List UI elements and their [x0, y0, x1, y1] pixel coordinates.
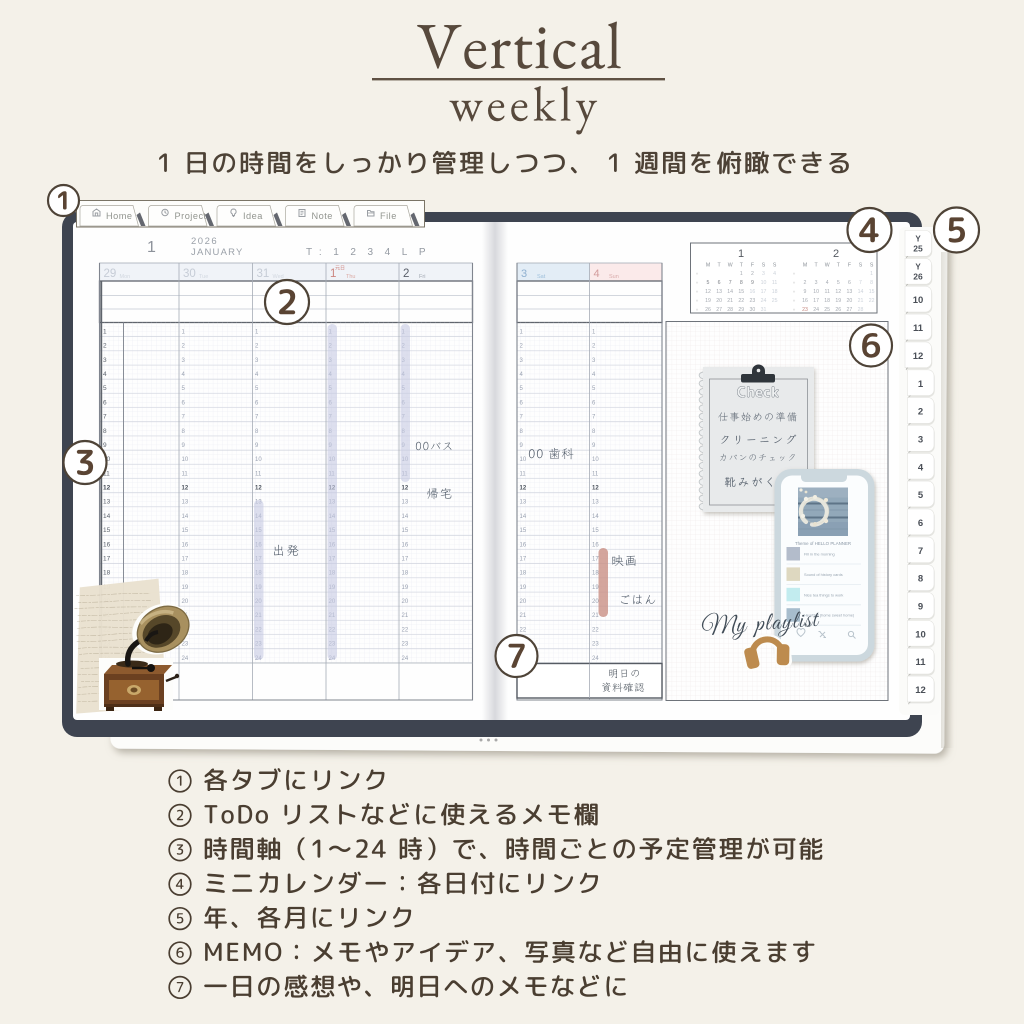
svg-text:11: 11 — [182, 471, 189, 477]
svg-text:S: S — [773, 263, 777, 269]
svg-text:9: 9 — [751, 280, 754, 286]
svg-text:Y: Y — [915, 235, 921, 244]
svg-text:13: 13 — [103, 499, 111, 506]
svg-text:7: 7 — [103, 414, 107, 421]
svg-text:4: 4 — [826, 280, 829, 286]
svg-text:Nice tea things to work: Nice tea things to work — [804, 592, 843, 597]
svg-text:31: 31 — [761, 307, 767, 313]
svg-text:5: 5 — [918, 490, 924, 501]
svg-text:15: 15 — [520, 528, 527, 534]
svg-text:12: 12 — [913, 351, 924, 362]
svg-text:18: 18 — [182, 571, 189, 577]
svg-text:23: 23 — [592, 642, 599, 648]
svg-text:14: 14 — [858, 289, 864, 295]
svg-text:17: 17 — [520, 557, 527, 563]
svg-text:12: 12 — [520, 486, 527, 492]
svg-text:S: S — [762, 263, 766, 269]
svg-text:F: F — [751, 263, 754, 269]
svg-text:15: 15 — [869, 289, 875, 295]
svg-text:16: 16 — [592, 542, 599, 548]
svg-text:M: M — [706, 263, 710, 269]
svg-text:11: 11 — [913, 323, 924, 334]
svg-text:4: 4 — [594, 268, 600, 280]
svg-text:Thu: Thu — [346, 274, 355, 280]
svg-text:21: 21 — [402, 613, 409, 619]
svg-text:4: 4 — [103, 371, 107, 378]
svg-text:1: 1 — [870, 271, 873, 277]
svg-text:10: 10 — [813, 289, 819, 295]
svg-text:27: 27 — [716, 307, 722, 313]
svg-text:10: 10 — [915, 629, 926, 640]
svg-text:12: 12 — [592, 486, 599, 492]
svg-text:17: 17 — [761, 289, 767, 295]
svg-text:6: 6 — [918, 518, 923, 529]
svg-text:JANUARY: JANUARY — [191, 247, 244, 258]
svg-text:6: 6 — [848, 280, 851, 286]
svg-text:22: 22 — [738, 298, 744, 304]
svg-text:17: 17 — [592, 557, 599, 563]
svg-text:20: 20 — [182, 599, 189, 605]
svg-text:11: 11 — [592, 471, 599, 477]
svg-text:11: 11 — [255, 471, 262, 477]
svg-text:15: 15 — [182, 528, 189, 534]
svg-text:10: 10 — [761, 280, 767, 286]
svg-text:S: S — [859, 263, 863, 269]
svg-text:3: 3 — [815, 280, 818, 286]
svg-text:File: File — [380, 211, 397, 221]
svg-text:20: 20 — [592, 599, 599, 605]
svg-text:6: 6 — [103, 399, 107, 406]
svg-text:28: 28 — [858, 307, 864, 313]
svg-text:10: 10 — [255, 457, 262, 463]
svg-text:22: 22 — [520, 627, 527, 633]
svg-text:14: 14 — [727, 289, 733, 295]
svg-text:20: 20 — [847, 298, 853, 304]
svg-text:12: 12 — [915, 685, 926, 696]
svg-text:3: 3 — [762, 271, 765, 277]
svg-text:1: 1 — [738, 248, 744, 260]
svg-text:15: 15 — [738, 289, 744, 295]
svg-text:W: W — [825, 263, 830, 269]
svg-text:Wed: Wed — [273, 274, 284, 280]
svg-text:11: 11 — [825, 289, 830, 295]
svg-text:1: 1 — [147, 239, 156, 256]
svg-text:8: 8 — [870, 280, 873, 286]
svg-text:28: 28 — [727, 307, 733, 313]
svg-text:Sound of history cards: Sound of history cards — [804, 572, 843, 577]
svg-text:19: 19 — [182, 585, 189, 591]
svg-text:13: 13 — [520, 500, 527, 506]
svg-text:2: 2 — [403, 268, 409, 280]
svg-text:1: 1 — [918, 379, 924, 390]
svg-text:24: 24 — [402, 656, 409, 662]
svg-text:13: 13 — [402, 500, 409, 506]
svg-text:1: 1 — [103, 329, 107, 336]
svg-text:20: 20 — [520, 599, 527, 605]
svg-text:17: 17 — [402, 557, 409, 563]
svg-text:11: 11 — [772, 280, 777, 286]
svg-text:19: 19 — [835, 298, 841, 304]
svg-text:12: 12 — [835, 289, 841, 295]
svg-text:7: 7 — [918, 546, 923, 557]
svg-text:16: 16 — [802, 298, 808, 304]
svg-text:F: F — [848, 263, 851, 269]
svg-text:23: 23 — [750, 298, 756, 304]
svg-text:11: 11 — [915, 657, 926, 668]
svg-text:8: 8 — [103, 428, 107, 435]
svg-text:26: 26 — [705, 307, 711, 313]
svg-text:21: 21 — [520, 613, 527, 619]
svg-text:10: 10 — [592, 457, 599, 463]
svg-text:2: 2 — [103, 343, 107, 350]
svg-text:17: 17 — [103, 556, 111, 563]
svg-text:20: 20 — [402, 599, 409, 605]
svg-text:12: 12 — [255, 486, 262, 492]
svg-text:16: 16 — [402, 542, 409, 548]
svg-text:4: 4 — [773, 271, 776, 277]
svg-text:21: 21 — [727, 298, 733, 304]
svg-text:3: 3 — [918, 435, 923, 446]
svg-text:Mon: Mon — [120, 274, 131, 280]
svg-text:Theme of HELLO PLANNER: Theme of HELLO PLANNER — [795, 541, 851, 546]
svg-text:30: 30 — [750, 307, 756, 313]
svg-text:29: 29 — [104, 268, 117, 280]
svg-text:8: 8 — [918, 574, 923, 585]
svg-text:Heartfelt (home sweet home): Heartfelt (home sweet home) — [804, 613, 855, 618]
svg-text:18: 18 — [772, 289, 778, 295]
svg-text:19: 19 — [520, 585, 527, 591]
svg-text:13: 13 — [592, 500, 599, 506]
svg-text:23: 23 — [182, 642, 189, 648]
svg-text:21: 21 — [858, 298, 864, 304]
svg-text:2026: 2026 — [191, 236, 218, 247]
svg-text:31: 31 — [257, 268, 270, 280]
svg-text:29: 29 — [738, 307, 744, 313]
svg-text:12: 12 — [182, 486, 189, 492]
svg-text:22: 22 — [402, 627, 409, 633]
svg-text:14: 14 — [402, 514, 409, 520]
svg-text:23: 23 — [402, 642, 409, 648]
svg-text:3: 3 — [103, 357, 107, 364]
svg-text:15: 15 — [103, 527, 111, 534]
svg-text:11: 11 — [520, 471, 527, 477]
svg-text:19: 19 — [592, 585, 599, 591]
svg-text:元日: 元日 — [335, 266, 345, 272]
svg-text:5: 5 — [707, 280, 710, 286]
svg-text:27: 27 — [847, 307, 853, 313]
svg-text:9: 9 — [804, 289, 807, 295]
svg-text:Fri: Fri — [419, 274, 425, 280]
svg-text:Tue: Tue — [199, 274, 208, 280]
svg-text:1: 1 — [740, 271, 743, 277]
svg-text:5: 5 — [837, 280, 840, 286]
svg-text:23: 23 — [802, 307, 808, 313]
svg-text:22: 22 — [592, 627, 599, 633]
svg-text:12: 12 — [705, 289, 711, 295]
svg-text:19: 19 — [705, 298, 711, 304]
svg-text:24: 24 — [813, 307, 819, 313]
svg-text:M: M — [803, 263, 807, 269]
svg-text:13: 13 — [847, 289, 853, 295]
svg-text:18: 18 — [824, 298, 830, 304]
svg-text:30: 30 — [183, 268, 196, 280]
svg-text:14: 14 — [520, 514, 527, 520]
svg-text:16: 16 — [750, 289, 756, 295]
svg-text:17: 17 — [813, 298, 819, 304]
svg-text:25: 25 — [824, 307, 830, 313]
svg-text:2: 2 — [833, 248, 839, 260]
svg-text:24: 24 — [761, 298, 767, 304]
svg-text:22: 22 — [869, 298, 875, 304]
svg-text:10: 10 — [520, 457, 527, 463]
svg-text:14: 14 — [592, 514, 599, 520]
svg-text:16: 16 — [520, 542, 527, 548]
svg-text:14: 14 — [182, 514, 189, 520]
svg-text:15: 15 — [402, 528, 409, 534]
svg-text:Sun: Sun — [609, 274, 619, 280]
svg-text:10: 10 — [182, 457, 189, 463]
svg-text:Y: Y — [915, 262, 921, 271]
svg-text:24: 24 — [182, 656, 189, 662]
svg-text:5: 5 — [103, 385, 107, 392]
svg-text:Idea: Idea — [243, 211, 263, 221]
svg-text:2: 2 — [918, 407, 923, 418]
svg-text:21: 21 — [592, 613, 599, 619]
svg-text:18: 18 — [402, 571, 409, 577]
svg-text:15: 15 — [592, 528, 599, 534]
svg-text:20: 20 — [716, 298, 722, 304]
svg-text:Fill in the morning: Fill in the morning — [804, 552, 835, 557]
svg-text:Home: Home — [106, 211, 133, 221]
svg-text:T : 1 2 3 4 L P: T : 1 2 3 4 L P — [306, 247, 427, 258]
svg-text:S: S — [870, 263, 874, 269]
svg-text:Note: Note — [312, 211, 333, 221]
svg-text:8: 8 — [740, 280, 743, 286]
svg-text:16: 16 — [182, 542, 189, 548]
svg-text:12: 12 — [103, 485, 111, 492]
svg-text:10: 10 — [913, 295, 924, 306]
svg-text:Project: Project — [175, 211, 207, 221]
svg-text:25: 25 — [772, 298, 778, 304]
svg-text:17: 17 — [182, 557, 189, 563]
svg-text:2: 2 — [751, 271, 754, 277]
svg-text:18: 18 — [103, 570, 111, 577]
svg-text:26: 26 — [913, 271, 923, 281]
svg-text:7: 7 — [859, 280, 862, 286]
svg-text:9: 9 — [918, 602, 923, 613]
svg-text:25: 25 — [913, 244, 923, 254]
svg-text:18: 18 — [520, 571, 527, 577]
svg-text:26: 26 — [835, 307, 841, 313]
svg-text:13: 13 — [182, 500, 189, 506]
svg-text:24: 24 — [592, 656, 599, 662]
svg-text:12: 12 — [402, 486, 409, 492]
svg-text:4: 4 — [918, 462, 924, 473]
svg-text:19: 19 — [402, 585, 409, 591]
svg-text:18: 18 — [592, 571, 599, 577]
svg-text:W: W — [728, 263, 733, 269]
svg-text:7: 7 — [729, 280, 732, 286]
svg-text:Sat: Sat — [537, 274, 546, 280]
svg-text:3: 3 — [521, 268, 527, 280]
svg-text:14: 14 — [103, 513, 111, 520]
svg-text:16: 16 — [103, 541, 111, 548]
svg-text:13: 13 — [716, 289, 722, 295]
svg-text:2: 2 — [804, 280, 807, 286]
svg-text:9: 9 — [103, 442, 107, 449]
svg-text:6: 6 — [718, 280, 721, 286]
